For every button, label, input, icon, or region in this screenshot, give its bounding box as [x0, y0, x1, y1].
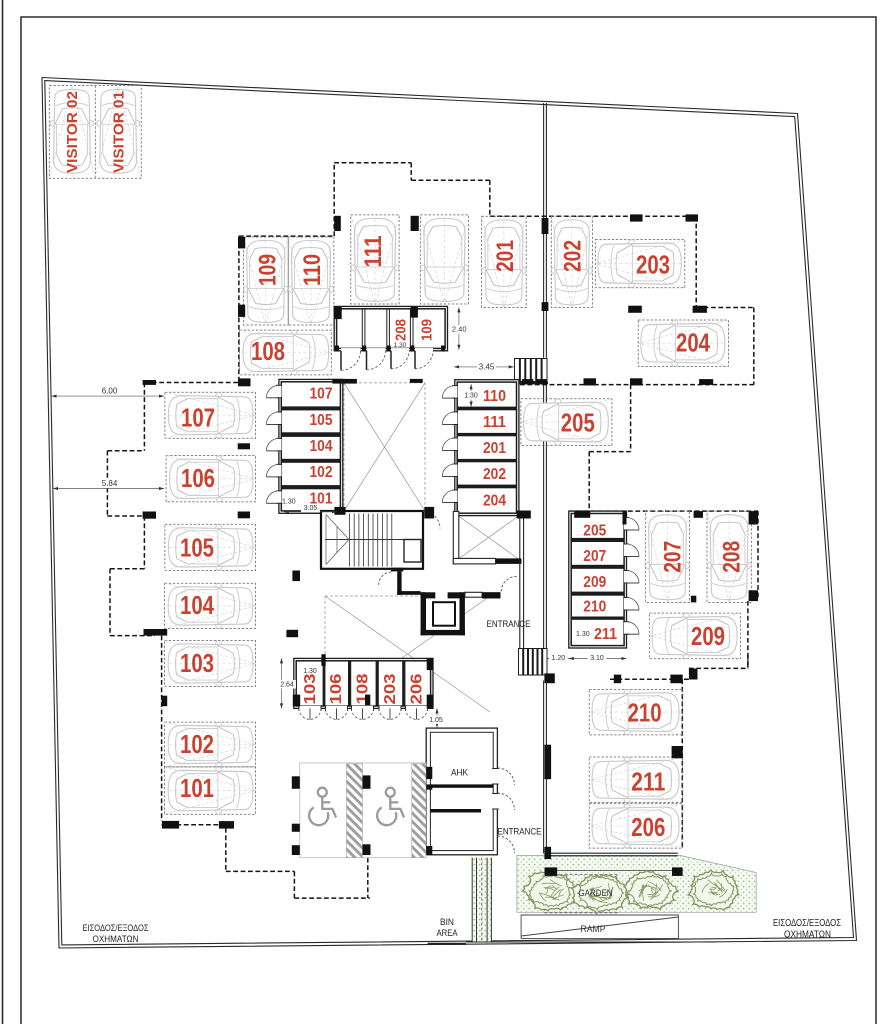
svg-text:1.30: 1.30: [576, 631, 590, 638]
svg-text:201: 201: [483, 440, 506, 457]
svg-text:1.30: 1.30: [394, 342, 407, 349]
svg-text:5.84: 5.84: [102, 479, 118, 488]
svg-text:ENTRANCE: ENTRANCE: [498, 826, 542, 836]
svg-text:106: 106: [181, 463, 215, 493]
svg-text:VISITOR 02: VISITOR 02: [65, 91, 81, 173]
svg-text:105: 105: [180, 533, 214, 563]
svg-text:211: 211: [631, 767, 665, 797]
svg-text:204: 204: [676, 328, 710, 358]
svg-text:208: 208: [393, 319, 410, 341]
svg-text:108: 108: [251, 336, 285, 366]
svg-text:ΟΧΗΜΑΤΩΝ: ΟΧΗΜΑΤΩΝ: [93, 934, 139, 945]
svg-text:ENTRANCE: ENTRANCE: [487, 619, 531, 629]
svg-text:203: 203: [382, 673, 399, 704]
svg-text:VISITOR 01: VISITOR 01: [111, 91, 127, 173]
svg-text:1.30: 1.30: [303, 668, 317, 675]
svg-text:109: 109: [255, 254, 282, 286]
svg-text:111: 111: [360, 236, 387, 268]
svg-text:210: 210: [583, 598, 606, 615]
svg-text:211: 211: [594, 626, 617, 643]
svg-text:208: 208: [719, 541, 746, 573]
svg-text:107: 107: [181, 403, 215, 433]
svg-text:105: 105: [310, 412, 333, 429]
svg-text:101: 101: [180, 773, 214, 803]
svg-text:104: 104: [180, 590, 214, 620]
svg-text:206: 206: [409, 673, 426, 704]
svg-text:2.64: 2.64: [280, 682, 294, 689]
svg-text:3.10: 3.10: [590, 655, 604, 662]
svg-text:ΟΧΗΜΑΤΩΝ: ΟΧΗΜΑΤΩΝ: [784, 930, 831, 941]
svg-text:102: 102: [310, 464, 333, 481]
svg-text:RAMP: RAMP: [581, 924, 606, 935]
svg-text:ΕΙΣΟΔΟΣ/ΕΞΟΔΟΣ: ΕΙΣΟΔΟΣ/ΕΞΟΔΟΣ: [773, 918, 841, 929]
svg-text:3.45: 3.45: [479, 363, 495, 372]
svg-text:102: 102: [180, 729, 214, 759]
svg-text:1.05: 1.05: [429, 717, 443, 724]
svg-text:206: 206: [631, 812, 665, 842]
svg-text:1.20: 1.20: [551, 655, 565, 662]
svg-text:203: 203: [636, 250, 670, 280]
svg-text:1.30: 1.30: [282, 499, 296, 506]
svg-text:104: 104: [310, 438, 333, 455]
svg-text:210: 210: [628, 698, 662, 728]
svg-text:201: 201: [492, 240, 519, 272]
svg-text:ΕΙΣΟΔΟΣ/ΕΞΟΔΟΣ: ΕΙΣΟΔΟΣ/ΕΞΟΔΟΣ: [83, 923, 149, 934]
svg-text:205: 205: [583, 522, 606, 539]
svg-text:109: 109: [418, 319, 435, 341]
svg-text:3.05: 3.05: [304, 505, 318, 512]
svg-text:202: 202: [483, 466, 506, 483]
svg-text:107: 107: [310, 386, 333, 403]
svg-text:GARDEN: GARDEN: [579, 888, 613, 898]
svg-text:103: 103: [180, 648, 214, 678]
svg-text:207: 207: [659, 541, 686, 573]
svg-text:AHK: AHK: [451, 768, 468, 778]
svg-text:AREA: AREA: [437, 928, 458, 938]
svg-text:6.00: 6.00: [102, 387, 118, 396]
svg-text:202: 202: [560, 240, 587, 272]
svg-text:207: 207: [583, 548, 606, 565]
svg-text:209: 209: [691, 621, 725, 651]
svg-text:103: 103: [302, 673, 319, 704]
svg-text:205: 205: [561, 408, 595, 438]
svg-text:110: 110: [299, 254, 326, 286]
svg-text:204: 204: [483, 493, 506, 510]
svg-text:209: 209: [583, 574, 606, 591]
svg-text:BIN: BIN: [440, 917, 454, 927]
svg-text:110: 110: [483, 388, 506, 405]
svg-text:111: 111: [483, 414, 506, 431]
svg-text:2.40: 2.40: [452, 325, 467, 334]
svg-text:106: 106: [328, 673, 345, 704]
svg-text:1.30: 1.30: [464, 393, 478, 400]
